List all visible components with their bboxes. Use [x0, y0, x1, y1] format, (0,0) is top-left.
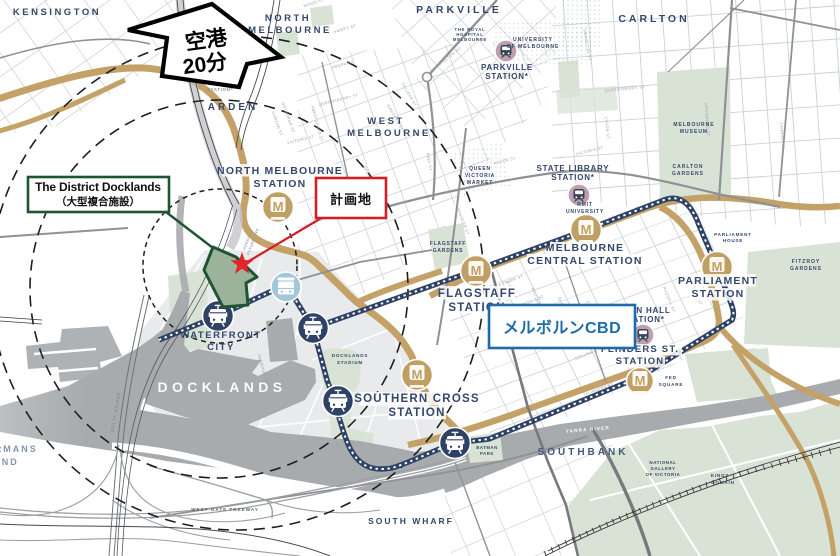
svg-text:PARLIAMENT: PARLIAMENT: [714, 232, 752, 237]
svg-text:（大型複合施設）: （大型複合施設）: [56, 195, 140, 208]
svg-text:STATION*: STATION*: [485, 72, 529, 81]
svg-text:M: M: [712, 259, 723, 274]
svg-text:BEND: BEND: [0, 457, 19, 467]
svg-text:OF VICTORIA: OF VICTORIA: [646, 472, 681, 477]
svg-text:NORTH: NORTH: [265, 13, 311, 24]
svg-text:CITY: CITY: [207, 342, 235, 353]
svg-text:OF MELBOURNE: OF MELBOURNE: [507, 44, 560, 50]
svg-text:CARLTON: CARLTON: [673, 164, 704, 170]
svg-text:VICTORIA: VICTORIA: [465, 173, 495, 179]
svg-text:MELBOURNE: MELBOURNE: [673, 122, 714, 128]
svg-text:MELBOURNE: MELBOURNE: [248, 25, 332, 36]
svg-text:MELBOURNE: MELBOURNE: [347, 128, 431, 139]
svg-text:STATION: STATION: [692, 288, 745, 300]
svg-text:M: M: [581, 222, 592, 237]
svg-text:GARDENS: GARDENS: [433, 248, 464, 254]
svg-text:FED: FED: [665, 375, 677, 380]
svg-text:FITZROY: FITZROY: [792, 259, 820, 265]
svg-text:MUSEUM: MUSEUM: [680, 129, 708, 135]
svg-text:FLAGSTAFF: FLAGSTAFF: [430, 241, 467, 247]
svg-text:PARLIAMENT: PARLIAMENT: [678, 275, 758, 287]
svg-text:計画地: 計画地: [330, 192, 372, 207]
svg-text:メルボルンCBD: メルボルンCBD: [503, 319, 621, 337]
svg-text:SQUARE: SQUARE: [659, 382, 683, 387]
svg-text:STATE LIBRARY: STATE LIBRARY: [537, 164, 610, 173]
svg-text:DOCKLANDS: DOCKLANDS: [332, 353, 369, 358]
svg-text:BATMAN: BATMAN: [476, 445, 497, 450]
svg-text:GALLERY: GALLERY: [650, 466, 675, 471]
svg-text:NATIONAL: NATIONAL: [649, 460, 676, 465]
svg-text:RMIT: RMIT: [577, 202, 592, 208]
svg-text:UNIVERSITY: UNIVERSITY: [513, 37, 553, 43]
svg-text:WEST: WEST: [367, 116, 404, 127]
svg-text:FLAGSTAFF: FLAGSTAFF: [438, 288, 516, 300]
svg-text:DOMAIN: DOMAIN: [711, 480, 734, 485]
svg-text:HOUSE: HOUSE: [723, 238, 743, 243]
svg-text:WEST GATE FREEWAY: WEST GATE FREEWAY: [191, 507, 259, 512]
svg-text:SOUTH WHARF: SOUTH WHARF: [368, 516, 454, 526]
svg-text:SOUTHBANK: SOUTHBANK: [538, 447, 629, 458]
svg-text:PARK: PARK: [480, 451, 494, 456]
svg-text:The District Docklands: The District Docklands: [35, 180, 161, 194]
svg-text:M: M: [471, 263, 482, 278]
svg-text:KENSINGTON: KENSINGTON: [13, 7, 101, 18]
svg-text:ARDEN: ARDEN: [208, 102, 259, 113]
svg-text:KINGS: KINGS: [711, 473, 730, 478]
svg-text:CENTRAL STATION: CENTRAL STATION: [527, 255, 642, 267]
svg-text:M: M: [273, 199, 284, 214]
svg-text:MELBOURNE: MELBOURNE: [546, 242, 624, 254]
svg-text:STADIUM: STADIUM: [337, 360, 363, 365]
svg-text:NORTH MELBOURNE: NORTH MELBOURNE: [217, 165, 343, 177]
svg-text:MARKET: MARKET: [467, 180, 493, 186]
svg-text:QUEEN: QUEEN: [469, 166, 491, 172]
svg-text:CARLTON: CARLTON: [618, 13, 689, 25]
svg-text:PARKVILLE: PARKVILLE: [481, 63, 533, 72]
svg-text:M: M: [635, 373, 646, 388]
svg-text:STATION: STATION: [616, 356, 665, 367]
svg-text:M: M: [412, 367, 423, 382]
svg-text:UNIVERSITY: UNIVERSITY: [566, 209, 604, 215]
svg-text:SOUTHERN CROSS: SOUTHERN CROSS: [354, 393, 479, 405]
svg-text:STATION*: STATION*: [207, 87, 233, 92]
svg-text:PARKVILLE: PARKVILLE: [416, 4, 502, 16]
svg-text:MELBOURNE: MELBOURNE: [453, 37, 487, 42]
svg-text:GARDENS: GARDENS: [672, 171, 704, 177]
svg-text:STATION: STATION: [388, 407, 445, 419]
svg-text:STATION*: STATION*: [551, 173, 595, 182]
svg-text:WATERFRONT: WATERFRONT: [180, 330, 261, 341]
svg-text:FISHERMANS: FISHERMANS: [0, 444, 38, 454]
svg-text:DOCKLANDS: DOCKLANDS: [157, 379, 286, 395]
svg-text:GARDENS: GARDENS: [790, 266, 822, 272]
svg-text:STATION: STATION: [254, 178, 307, 190]
